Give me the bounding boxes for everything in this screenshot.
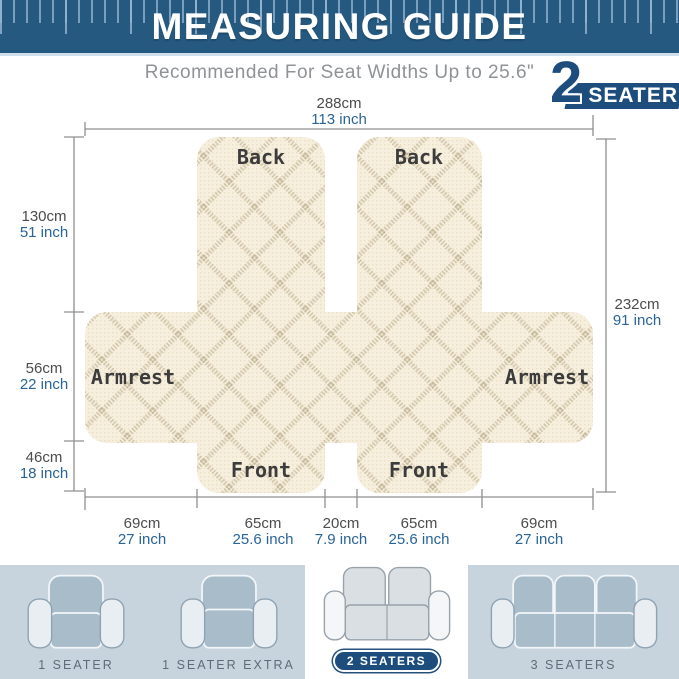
- measure-inch: 27 inch: [515, 532, 563, 548]
- variant-label: 3 SEATERS: [531, 658, 617, 672]
- measure-cm: 20cm: [315, 516, 368, 532]
- variant-label-selected: 2 SEATERS: [333, 650, 440, 672]
- variant-label: 1 SEATER EXTRA: [162, 658, 295, 672]
- measure-armrest-height: 56cm 22 inch: [20, 361, 68, 393]
- measure-total-length: 232cm 91 inch: [613, 297, 661, 329]
- back-right-label: Back: [395, 145, 443, 169]
- front-left-label: Front: [231, 458, 291, 482]
- measure-inch: 91 inch: [613, 313, 661, 329]
- measure-cm: 69cm: [515, 516, 563, 532]
- size-variants-strip: 1 SEATER 1 SEATER EXTRA: [0, 565, 679, 679]
- measure-inch: 25.6 inch: [389, 532, 450, 548]
- measure-inch: 18 inch: [20, 466, 68, 482]
- measure-inch: 22 inch: [20, 377, 68, 393]
- measure-bottom-armrest-left: 69cm 27 inch: [118, 516, 166, 548]
- variant-label: 1 SEATER: [38, 658, 114, 672]
- measure-cm: 56cm: [20, 361, 68, 377]
- armrest-right-label: Armrest: [505, 365, 589, 389]
- measure-cm: 46cm: [20, 450, 68, 466]
- measure-inch: 7.9 inch: [315, 532, 368, 548]
- measure-cm: 130cm: [20, 209, 68, 225]
- badge-label: SEATER: [570, 83, 679, 109]
- front-right-label: Front: [389, 458, 449, 482]
- measure-inch: 27 inch: [118, 532, 166, 548]
- measure-inch: 25.6 inch: [233, 532, 294, 548]
- measure-inch: 51 inch: [20, 225, 68, 241]
- variant-1-seater-extra: 1 SEATER EXTRA: [152, 565, 305, 679]
- measure-top-width: 288cm 113 inch: [311, 96, 367, 128]
- measure-bottom-seat-right: 65cm 25.6 inch: [389, 516, 450, 548]
- measure-cm: 65cm: [389, 516, 450, 532]
- measure-cm: 69cm: [118, 516, 166, 532]
- variant-2-seaters-selected: 2 SEATERS: [305, 565, 468, 679]
- measure-cm: 232cm: [613, 297, 661, 313]
- back-left-label: Back: [237, 145, 285, 169]
- variant-3-seaters: 3 SEATERS: [468, 565, 679, 679]
- measure-back-height: 130cm 51 inch: [20, 209, 68, 241]
- measuring-guide-infographic: MEASURING GUIDE Recommended For Seat Wid…: [0, 0, 679, 679]
- measure-cm: 288cm: [311, 96, 367, 112]
- measure-front-height: 46cm 18 inch: [20, 450, 68, 482]
- armrest-left-label: Armrest: [91, 365, 175, 389]
- sofa-icon: [481, 573, 667, 653]
- measure-bottom-armrest-right: 69cm 27 inch: [515, 516, 563, 548]
- variant-1-seater: 1 SEATER: [0, 565, 152, 679]
- badge-number: 2: [550, 54, 582, 112]
- measure-bottom-gap: 20cm 7.9 inch: [315, 516, 368, 548]
- armchair-icon: [20, 573, 132, 653]
- measure-cm: 65cm: [233, 516, 294, 532]
- armchair-extra-icon: [173, 573, 285, 653]
- measure-bottom-seat-left: 65cm 25.6 inch: [233, 516, 294, 548]
- measure-inch: 113 inch: [311, 112, 367, 128]
- loveseat-icon: [317, 565, 457, 645]
